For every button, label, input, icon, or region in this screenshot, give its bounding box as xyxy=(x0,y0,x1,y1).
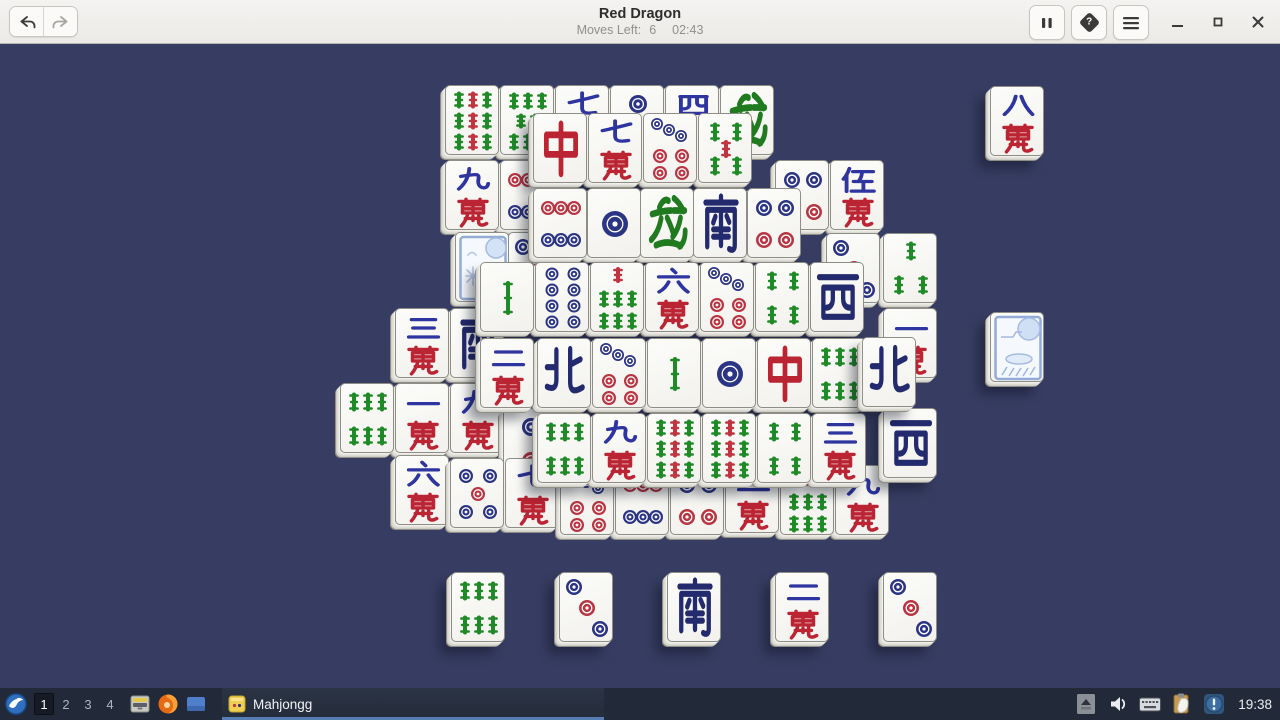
close-icon xyxy=(1251,15,1265,29)
tile-bamboo-9[interactable] xyxy=(647,413,701,483)
tile-char-2[interactable] xyxy=(480,338,534,408)
tile-bamboo-1[interactable] xyxy=(647,338,701,408)
close-button[interactable] xyxy=(1247,12,1269,32)
tile-char-9[interactable] xyxy=(445,160,499,230)
tile-circle-4[interactable] xyxy=(747,188,801,258)
menu-button[interactable] xyxy=(1113,5,1149,40)
hint-icon: ? xyxy=(1078,12,1099,33)
tile-char-5[interactable] xyxy=(830,160,884,230)
volume-icon xyxy=(1107,693,1129,715)
clipboard-icon xyxy=(1171,692,1193,716)
tile-char-7[interactable] xyxy=(588,113,642,183)
tile-circle-1[interactable] xyxy=(587,188,641,258)
system-tray: 19:38 xyxy=(1072,688,1280,720)
moves-left-label: Moves Left: xyxy=(577,23,642,38)
tile-wind-west[interactable] xyxy=(883,408,937,478)
tile-dragon-red[interactable] xyxy=(757,338,811,408)
taskbar-window-button[interactable]: Mahjongg xyxy=(222,688,604,720)
tile-wind-north[interactable] xyxy=(862,337,916,407)
tile-bamboo-6[interactable] xyxy=(340,383,394,453)
tile-bamboo-5[interactable] xyxy=(698,113,752,183)
minimize-icon xyxy=(1171,15,1185,29)
panel-expand-icon xyxy=(1076,692,1096,716)
tile-char-3[interactable] xyxy=(812,413,866,483)
taskbar-clock: 19:38 xyxy=(1238,697,1272,712)
tile-bamboo-1[interactable] xyxy=(480,262,534,332)
notification-icon xyxy=(1203,693,1225,715)
keyboard-button[interactable] xyxy=(1136,690,1164,718)
panel-expand-button[interactable] xyxy=(1072,690,1100,718)
window-title: Red Dragon xyxy=(599,6,681,23)
tile-wind-west[interactable] xyxy=(810,262,864,332)
game-board xyxy=(0,44,1280,688)
tile-circle-7[interactable] xyxy=(700,262,754,332)
workspace-pager: 1234 xyxy=(34,693,120,715)
tile-wind-north[interactable] xyxy=(537,338,591,408)
firefox-icon xyxy=(157,693,179,715)
tile-circle-7[interactable] xyxy=(592,338,646,408)
tile-bamboo-6[interactable] xyxy=(812,338,866,408)
maximize-icon xyxy=(1211,15,1225,29)
window-icon xyxy=(185,693,207,715)
tile-bamboo-6[interactable] xyxy=(451,572,505,642)
file-manager-icon xyxy=(129,693,151,715)
tile-dragon-green[interactable] xyxy=(640,188,694,258)
workspace-1[interactable]: 1 xyxy=(34,693,54,715)
hamburger-menu-icon xyxy=(1122,16,1140,30)
tile-char-8[interactable] xyxy=(990,86,1044,156)
status-subtitle: Moves Left:602:43 xyxy=(577,23,704,38)
keyboard-icon xyxy=(1138,693,1162,715)
mahjongg-task-icon xyxy=(228,695,246,713)
tile-circle-3[interactable] xyxy=(883,572,937,642)
tile-circle-8[interactable] xyxy=(535,262,589,332)
workspace-4[interactable]: 4 xyxy=(100,693,120,715)
tile-char-9[interactable] xyxy=(592,413,646,483)
tile-char-3[interactable] xyxy=(395,308,449,378)
undo-redo-group xyxy=(9,6,78,37)
tile-wind-south[interactable] xyxy=(693,188,747,258)
tile-bamboo-9[interactable] xyxy=(702,413,756,483)
moves-left-value: 6 xyxy=(649,23,656,38)
tile-bamboo-9[interactable] xyxy=(445,85,499,155)
pause-button[interactable] xyxy=(1029,5,1065,40)
tile-circle-3[interactable] xyxy=(559,572,613,642)
maximize-button[interactable] xyxy=(1207,12,1229,32)
tile-season[interactable] xyxy=(990,312,1044,382)
tile-char-1[interactable] xyxy=(395,383,449,453)
tile-bamboo-4[interactable] xyxy=(755,262,809,332)
firefox-launcher[interactable] xyxy=(154,690,182,718)
tile-bamboo-4[interactable] xyxy=(757,413,811,483)
tile-char-6[interactable] xyxy=(395,455,449,525)
whisker-menu-button[interactable] xyxy=(0,688,32,720)
undo-icon xyxy=(15,10,39,34)
whisker-menu-icon xyxy=(4,692,28,716)
tile-char-2[interactable] xyxy=(775,572,829,642)
tile-dragon-red[interactable] xyxy=(533,113,587,183)
volume-button[interactable] xyxy=(1104,690,1132,718)
workspace-3[interactable]: 3 xyxy=(78,693,98,715)
tile-bamboo-7[interactable] xyxy=(590,262,644,332)
file-manager-launcher[interactable] xyxy=(126,690,154,718)
hint-button[interactable]: ? xyxy=(1071,5,1107,40)
tile-bamboo-6[interactable] xyxy=(537,413,591,483)
tile-bamboo-3[interactable] xyxy=(883,233,937,303)
header-bar: Red Dragon Moves Left:602:43 ? xyxy=(0,0,1280,44)
clipboard-button[interactable] xyxy=(1168,690,1196,718)
tile-circle-5[interactable] xyxy=(450,458,504,528)
tile-circle-7[interactable] xyxy=(643,113,697,183)
timer-value: 02:43 xyxy=(672,23,703,38)
redo-button[interactable] xyxy=(43,7,77,36)
tile-char-6[interactable] xyxy=(645,262,699,332)
window-launcher[interactable] xyxy=(182,690,210,718)
minimize-button[interactable] xyxy=(1167,12,1189,32)
notification-button[interactable] xyxy=(1200,690,1228,718)
tile-circle-1[interactable] xyxy=(702,338,756,408)
redo-icon xyxy=(49,10,73,34)
tile-wind-south[interactable] xyxy=(667,572,721,642)
workspace-2[interactable]: 2 xyxy=(56,693,76,715)
tile-circle-6[interactable] xyxy=(533,188,587,258)
taskbar: 1234 Mahjongg xyxy=(0,688,1280,720)
undo-button[interactable] xyxy=(10,7,43,36)
taskbar-window-label: Mahjongg xyxy=(253,697,312,712)
pause-icon xyxy=(1039,15,1055,31)
